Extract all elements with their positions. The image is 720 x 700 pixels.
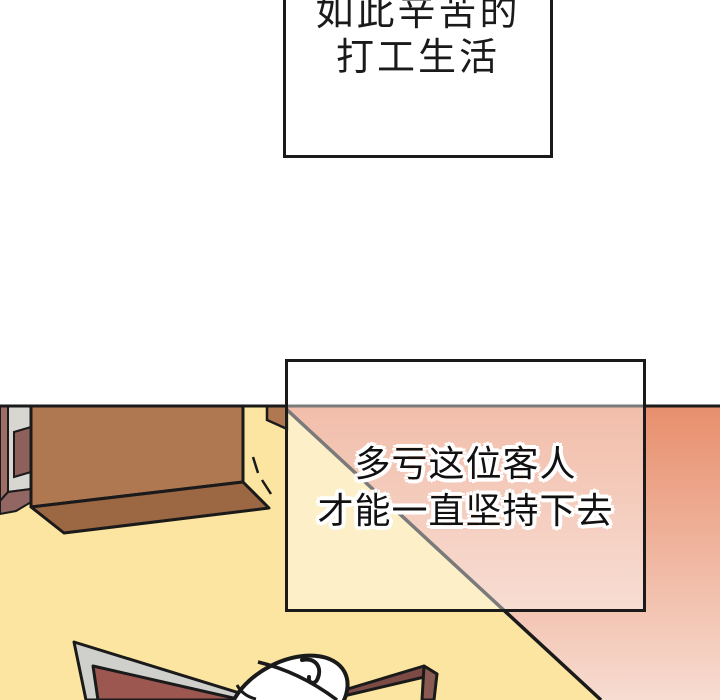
- caption-box-middle: 多亏这位客人 才能一直坚持下去: [285, 359, 646, 612]
- caption-mid-line-1: 多亏这位客人: [354, 440, 576, 487]
- caption-top-line-2: 打工生活: [336, 36, 500, 81]
- door-panel: [14, 427, 31, 477]
- caption-box-top: 如此辛苦的 打工生活: [283, 0, 553, 158]
- caption-top-line-1: 如此辛苦的: [315, 0, 520, 36]
- caption-mid-line-2: 才能一直坚持下去: [317, 487, 613, 534]
- table-far-edge-cap: [422, 666, 437, 700]
- comic-page: { "page": { "background": "#ffffff" }, "…: [0, 0, 720, 700]
- door-plank: [0, 406, 8, 501]
